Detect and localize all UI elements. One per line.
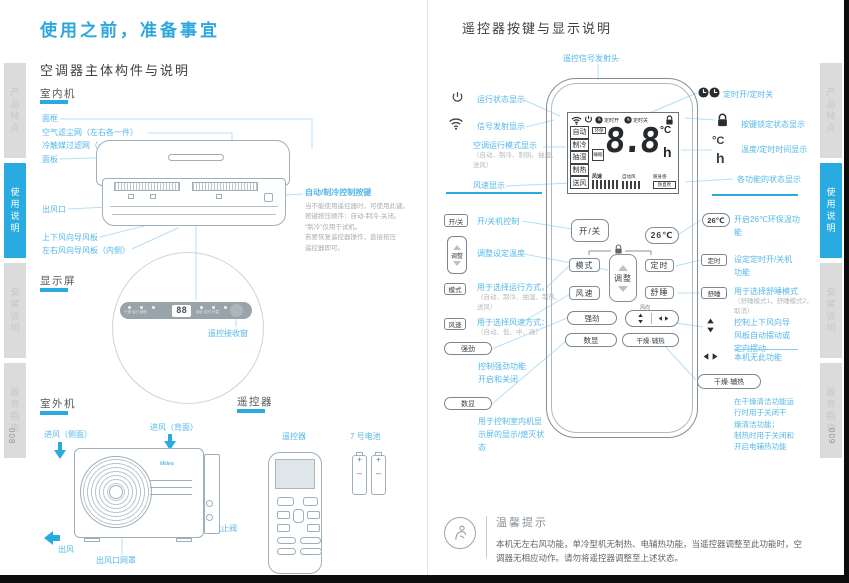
lcd-mode-cool: 制冷 [570, 139, 589, 152]
desc-fan: 用于选择风速方式： [477, 318, 549, 328]
battery-label: 7 号电池 [350, 432, 381, 442]
page-title-right: 遥控器按键与显示说明 [462, 18, 612, 37]
legend-adjust-key: 调整 [447, 236, 467, 274]
remote-adjust-button: 调整 [609, 254, 637, 302]
lcd-mode-fan: 送风 [570, 176, 589, 189]
page-number-right: 009 [827, 428, 836, 444]
remote-label: 遥控器 [282, 432, 306, 442]
annotation-function-status: 各功能的状态显示 [737, 175, 801, 185]
timer-off-icon [709, 87, 720, 98]
desc-fan-sub: （自动、低、中、高） [477, 328, 542, 338]
brand-logo: Midea [160, 461, 174, 467]
remote-26c-button: 26℃ [645, 227, 679, 244]
timer-on-clock-icon [595, 116, 603, 124]
wifi-icon [571, 116, 582, 125]
adjust-up-icon [618, 265, 628, 271]
hour-unit-glyph: h [716, 150, 725, 166]
annotation-timer-icons: 定时开/定时关 [723, 90, 773, 100]
timer-on-icon [698, 87, 709, 98]
remote-swing-buttons [625, 310, 679, 327]
lock-status-icon [716, 113, 729, 128]
lcd-follow: 随身感 [653, 174, 667, 180]
remote-power-button: 开/关 [571, 219, 609, 242]
legend-power-key: 开/关 [444, 214, 468, 227]
lcd-mode-heat: 制热 [570, 164, 589, 177]
desc-display: 用于控制室内机显 示屏的显示/熄灭状 态 [478, 416, 544, 454]
adjust-label: 调整 [614, 273, 632, 284]
power-status-icon [451, 91, 464, 104]
remote-lcd: 定时开 定时关 自动 制冷 抽湿 制热 送风 环保 睡眠 8.8 °C h 风速… [567, 112, 679, 194]
manual-spread: 产品特点 使用说明 安装说明 服务指南 008 产品特点 使用说明 安装说明 服… [0, 0, 849, 583]
adjust-down-icon [618, 286, 628, 292]
remote-heading-underline [237, 409, 265, 413]
sidebar-tab-product-features-right: 产品特点 [820, 63, 842, 158]
signal-icon [448, 117, 464, 130]
lcd-eco: 环保 [592, 127, 606, 134]
power-icon [584, 115, 593, 124]
desc-adjust: 调整设定温度 [477, 249, 525, 259]
sidebar-tab-usage-right: 使用说明 [820, 163, 842, 258]
valve-lower [206, 514, 213, 521]
swing-vertical-icon [636, 313, 645, 324]
temp-unit-glyph: °C [712, 135, 724, 147]
desc-turbo: 控制强劲功能 开启和关闭 [478, 361, 526, 387]
remote-timer-button: 定时 [645, 259, 674, 272]
subsection-remote: 遥控器 [237, 394, 273, 409]
lcd-mode-dry: 抽湿 [570, 151, 589, 164]
legend-display-oval: 数显 [444, 397, 492, 410]
swing-horizontal-icon [658, 314, 669, 323]
remote-turbo-button: 强劲 [567, 311, 617, 325]
desc-dry-heat: 在干燥清洁功能运 行时用于关闭干 燥清洁功能； 制热时用于关闭和 开启电辅热功能 [734, 396, 794, 452]
remote-fan-button: 风速 [569, 286, 600, 300]
annotation-fan-display: 风速显示 [473, 181, 505, 191]
swing-horizontal-legend-icon [703, 350, 718, 363]
legend-fan-key: 风速 [444, 318, 466, 330]
remote-dry-heat-button: 干燥·辅热 [622, 333, 679, 347]
desc-mode-sub: （自动、制冷、抽湿、制热、 送风） [477, 293, 562, 313]
lcd-deg: °C [660, 125, 671, 136]
annotation-mode-display: 空调运行模式显示 [473, 141, 537, 151]
legend-timer-key: 定时 [701, 254, 727, 266]
lcd-fan-bars [592, 180, 618, 189]
tips-person-icon [444, 517, 476, 549]
legend-sleep-key: 舒睡 [701, 287, 727, 299]
annotation-signal: 信号发射显示 [477, 122, 525, 132]
swing-divider [734, 349, 798, 350]
legend-mode-key: 模式 [444, 283, 466, 295]
valve-upper [206, 500, 213, 507]
desc-sleep-sub: （舒睡模式1，舒睡模式2， 取消） [734, 297, 813, 317]
sidebar-tab-install-right: 安装说明 [820, 263, 842, 358]
lcd-auto-fan: 自动风 [622, 174, 636, 180]
annotation-lock: 按键锁定状态显示 [741, 120, 805, 130]
right-edge-band [844, 0, 849, 583]
tips-divider [486, 516, 487, 558]
swing-vertical-legend-icon [704, 318, 717, 333]
lcd-sleep: 睡眠 [592, 149, 604, 161]
emitter-label: 遥控信号发射头 [563, 54, 619, 64]
legend-26c-key: 26℃ [702, 213, 730, 227]
remote-sleep-button: 舒睡 [645, 286, 674, 299]
remote-display-button: 数显 [565, 333, 617, 347]
desc-swing-horizontal: 本机无此功能 [734, 353, 782, 363]
auto-key-note: 当不能使用遥控器时，可使用此键。 按键按压顺序：自动-制冷-关闭。 “制冷”仅用… [305, 202, 415, 254]
annotation-temp-time: 温度/定时时间显示 [741, 145, 807, 155]
lcd-fan-label: 风速 [592, 173, 602, 180]
auto-key-label: 自动/制冷控制按键 [305, 188, 371, 198]
remote-mode-button: 模式 [569, 258, 600, 272]
legend-dry-heat-oval: 干燥·辅热 [697, 374, 761, 389]
annotation-run-status: 运行状态显示 [477, 95, 525, 105]
lcd-auto-fan-bars [622, 181, 640, 189]
right-column-divider [712, 194, 798, 196]
annotation-mode-display-sub: （自动、制冷、制热、抽湿、 送风） [473, 151, 558, 171]
legend-turbo-oval: 强劲 [444, 342, 492, 355]
desc-26c: 开启26℃环保温功 能 [734, 214, 800, 240]
desc-timer: 设定定时开/关机 功能 [734, 254, 792, 280]
lcd-hour: h [663, 144, 672, 160]
auto-cool-key-drawing [264, 193, 273, 202]
lcd-nodirect: 防直吹 [653, 181, 676, 189]
center-divider [427, 0, 428, 575]
lcd-mode-auto: 自动 [570, 126, 589, 139]
tips-title: 温馨提示 [496, 514, 548, 530]
left-column-divider [446, 192, 542, 194]
desc-mode: 用于选择运行方式， [477, 283, 549, 293]
tips-body: 本机无左右风功能，单冷型机无制热、电辅热功能，当遥控器调整至此功能时，空 调器无… [496, 537, 816, 566]
desc-power: 开/关机控制 [477, 217, 519, 227]
lcd-digits: 8.8 [604, 121, 659, 161]
desc-sleep: 用于选择舒睡模式 [734, 287, 798, 297]
